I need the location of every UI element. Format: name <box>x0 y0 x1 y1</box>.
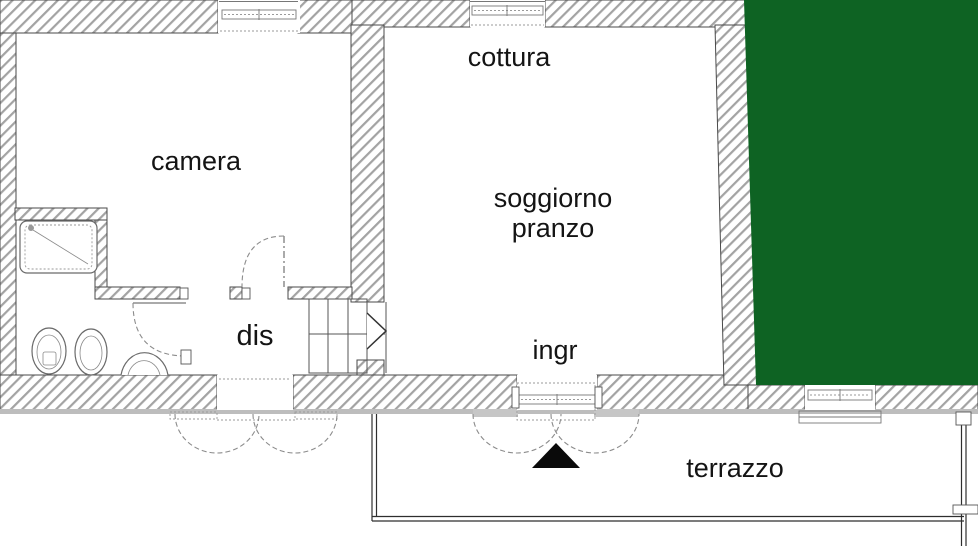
wall-bottom-b <box>293 375 517 410</box>
sink-outline <box>121 353 168 375</box>
door-soggiorno-jamb-right <box>595 387 602 408</box>
door-leaf-shadow-left <box>473 409 518 417</box>
wall-dis-top-b <box>230 287 242 299</box>
label-camera: camera <box>151 146 242 176</box>
terrazzo-boundary <box>372 412 978 546</box>
terrazzo-pillar-top <box>956 412 971 425</box>
door-bathroom-jamb-top <box>180 288 188 299</box>
wall-top-left-b <box>298 0 352 33</box>
label-cottura: cottura <box>468 42 552 72</box>
shower-tray <box>20 221 97 273</box>
toilet <box>32 328 66 374</box>
door-bathroom-arc <box>133 303 186 356</box>
label-terrazzo: terrazzo <box>686 453 784 483</box>
terrazzo-pillar-bottom <box>953 505 978 514</box>
wall-left <box>0 33 16 375</box>
wall-top-mid-a <box>352 0 470 27</box>
window-camera <box>218 0 300 33</box>
floor-plan: camera cottura soggiorno pranzo ingr dis… <box>0 0 978 546</box>
window-cottura-gap <box>470 0 545 27</box>
garden-area <box>744 0 978 385</box>
door-bathroom-jamb-bottom <box>181 350 191 364</box>
wall-under-garden-a <box>748 385 805 410</box>
wall-under-garden-b <box>875 385 978 410</box>
door-camera-jamb <box>242 288 250 299</box>
bidet <box>75 329 107 375</box>
label-soggiorno-line2: pranzo <box>512 213 595 243</box>
floor-plan-canvas: camera cottura soggiorno pranzo ingr dis… <box>0 0 978 546</box>
wall-bath-top <box>15 208 107 220</box>
door-dis-gap <box>217 375 293 410</box>
wall-top-left-a <box>0 0 218 33</box>
window-cottura <box>470 0 545 27</box>
wall-dis-top-a <box>95 287 180 299</box>
label-ingresso: ingr <box>532 335 577 365</box>
door-leaf-shadow-right <box>594 409 639 417</box>
door-soggiorno-jamb-left <box>512 387 519 408</box>
label-soggiorno-line1: soggiorno <box>494 183 613 213</box>
entrance-triangle-icon <box>532 443 580 468</box>
wall-divider-camera-soggiorno <box>351 25 384 302</box>
wall-top-mid-b <box>545 0 748 27</box>
stairs-direction-arrow-icon <box>367 313 386 349</box>
room-labels: camera cottura soggiorno pranzo ingr dis… <box>151 42 784 483</box>
sink <box>121 353 168 375</box>
window-garden-wall <box>799 385 881 423</box>
door-camera <box>242 236 284 299</box>
door-camera-arc <box>242 236 284 287</box>
wall-bottom-a <box>0 375 217 410</box>
label-disimpegno: dis <box>236 320 273 352</box>
wall-stairs-top <box>288 287 352 299</box>
